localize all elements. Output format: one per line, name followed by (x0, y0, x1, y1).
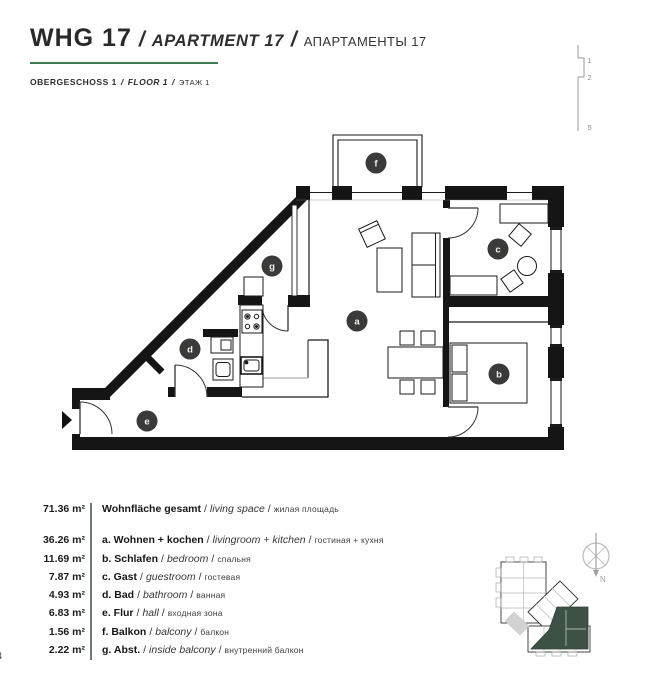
key-plan (496, 557, 590, 656)
guest-chair-2 (501, 270, 523, 292)
area-description: a. Wohnen + kochen/livingroom + kitchen/… (102, 534, 384, 546)
table-row-total: 71.36 m² Wohnfläche gesamt/living space/… (0, 503, 420, 521)
bed (450, 343, 527, 403)
kitchen-door (262, 305, 288, 331)
compass-north-label: N (600, 575, 606, 584)
sideboard (450, 276, 497, 295)
room-badge-f: f (366, 153, 387, 174)
entrance-arrow-icon (62, 411, 72, 429)
bathroom-door (175, 365, 207, 397)
area-value: 6.83 m² (0, 607, 85, 619)
area-value: 71.36 m² (0, 503, 85, 515)
room-badge-b: b (489, 364, 510, 385)
svg-text:e: e (144, 417, 149, 428)
guest-chair-1 (509, 224, 532, 247)
level-mark-2: 2 (588, 73, 592, 82)
area-description: b. Schlafen/bedroom/спальня (102, 553, 251, 565)
area-table: 71.36 m² Wohnfläche gesamt/living space/… (0, 503, 420, 662)
table-row: 7.87 m² c. Gast/guestroom/гостевая (0, 571, 420, 589)
guestroom-door (448, 208, 478, 238)
area-description: c. Gast/guestroom/гостевая (102, 571, 240, 583)
coffee-table (377, 248, 402, 292)
page-number: 4 (0, 651, 2, 662)
room-badge-c: c (488, 239, 509, 260)
dining-set (388, 331, 443, 394)
table-row: 2.22 m² g. Abst./inside balcony/внутренн… (0, 644, 420, 662)
diagonal-wall (104, 191, 309, 396)
toilet (213, 359, 233, 380)
area-value: 7.87 m² (0, 571, 85, 583)
bathroom-sink (211, 337, 233, 353)
table-row: 6.83 m² e. Flur/hall/входная зона (0, 607, 420, 625)
area-value: 4.93 m² (0, 589, 85, 601)
area-value: 1.56 m² (0, 626, 85, 638)
table-row: 11.69 m² b. Schlafen/bedroom/спальня (0, 553, 420, 571)
compass-icon: N (583, 533, 609, 584)
floor-level-indicator: 1 2 5 (578, 45, 592, 132)
table-divider-line (90, 503, 92, 660)
area-value: 2.22 m² (0, 644, 85, 656)
desk (500, 204, 548, 223)
level-mark-1: 1 (588, 56, 592, 65)
svg-text:g: g (269, 262, 275, 273)
area-value: 36.26 m² (0, 534, 85, 546)
round-table (518, 257, 537, 276)
window-right (548, 227, 564, 427)
entrance-door (80, 402, 112, 434)
kitchen-sink (241, 357, 262, 374)
room-badge-e: e (137, 411, 158, 432)
area-value: 11.69 m² (0, 553, 85, 565)
area-description: Wohnfläche gesamt/living space/жилая пло… (102, 503, 339, 515)
sofa (412, 233, 440, 297)
table-row: 36.26 m² a. Wohnen + kochen/livingroom +… (0, 534, 420, 552)
area-description: g. Abst./inside balcony/внутренний балко… (102, 644, 304, 656)
area-description: f. Balkon/balcony/балкон (102, 626, 229, 638)
svg-text:d: d (187, 345, 193, 356)
brochure-page: { "header": { "accent_color": "#3f7a52",… (0, 0, 662, 687)
exterior-walls (72, 186, 564, 450)
svg-text:c: c (495, 245, 500, 256)
svg-text:a: a (354, 317, 360, 328)
area-description: e. Flur/hall/входная зона (102, 607, 223, 619)
room-badge-g: g (262, 256, 283, 277)
room-badge-d: d (180, 339, 201, 360)
level-mark-5: 5 (588, 123, 592, 132)
room-badge-a: a (347, 311, 368, 332)
table-row: 1.56 m² f. Balkon/balcony/балкон (0, 626, 420, 644)
cabinet (244, 277, 263, 296)
armchair (359, 221, 386, 248)
table-row: 4.93 m² d. Bad/bathroom/ванная (0, 589, 420, 607)
svg-text:b: b (496, 370, 502, 381)
area-description: d. Bad/bathroom/ванная (102, 589, 225, 601)
bedroom-door (448, 407, 478, 437)
